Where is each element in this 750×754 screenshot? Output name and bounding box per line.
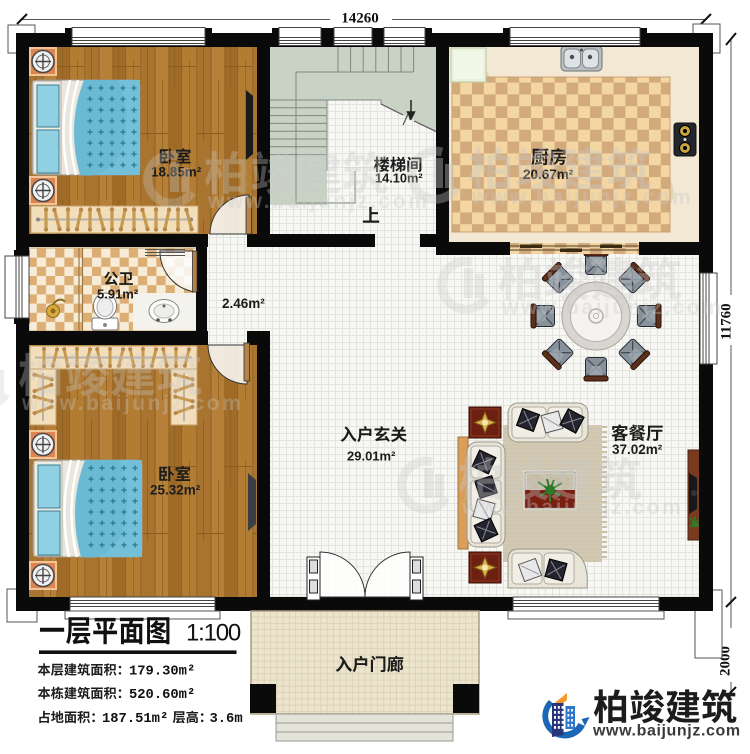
svg-text:www.baijunjz.com: www.baijunjz.com — [592, 723, 741, 740]
svg-text:187.51m²: 187.51m² — [102, 712, 168, 727]
svg-text:37.02m²: 37.02m² — [612, 442, 663, 457]
svg-text:1:100: 1:100 — [186, 620, 241, 647]
svg-text:14260: 14260 — [341, 11, 379, 27]
svg-text:2.46m²: 2.46m² — [222, 296, 265, 311]
svg-text:5.91m²: 5.91m² — [97, 287, 139, 302]
svg-text:3.6m: 3.6m — [210, 712, 243, 727]
svg-text:29.01m²: 29.01m² — [347, 449, 396, 464]
svg-text:25.32m²: 25.32m² — [150, 483, 201, 498]
svg-text:520.60m²: 520.60m² — [129, 688, 195, 703]
svg-text:179.30m²: 179.30m² — [129, 665, 195, 680]
